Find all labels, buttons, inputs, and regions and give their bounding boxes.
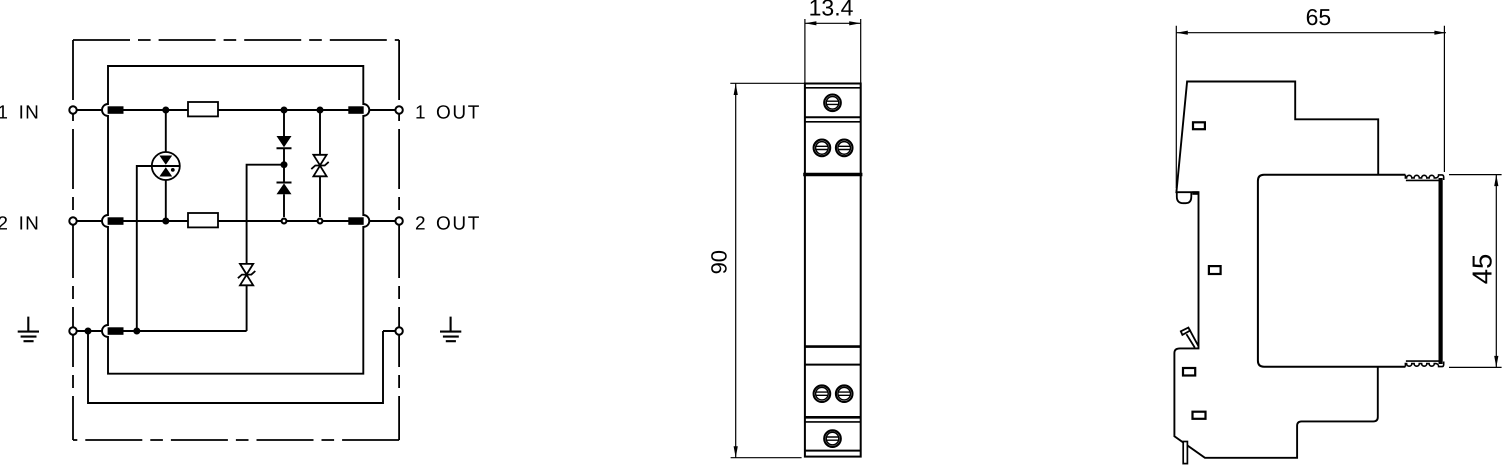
svg-text:OUT: OUT [436,214,481,235]
svg-text:1: 1 [0,102,8,123]
svg-text:13.4: 13.4 [809,0,854,21]
svg-text:90: 90 [707,250,732,274]
svg-text:IN: IN [19,102,40,123]
svg-text:2: 2 [0,213,8,234]
svg-text:65: 65 [1306,4,1332,30]
svg-text:1: 1 [415,103,426,124]
svg-text:IN: IN [19,213,40,234]
svg-text:OUT: OUT [436,103,481,124]
svg-text:45: 45 [1466,254,1497,285]
svg-text:2: 2 [415,214,426,235]
